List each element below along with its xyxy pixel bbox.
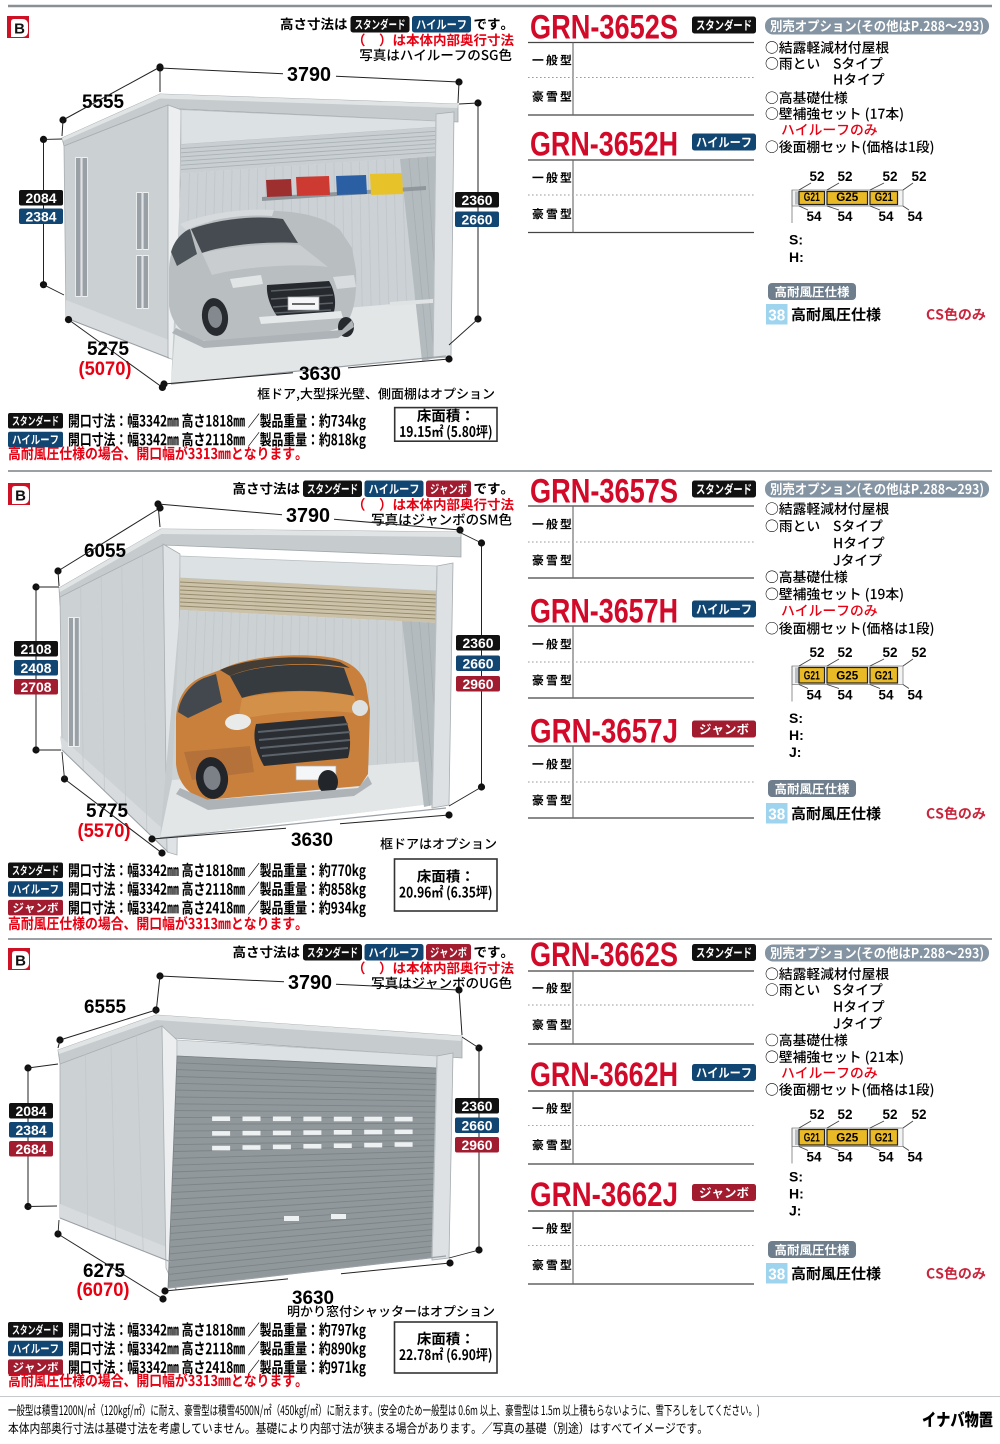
svg-text:J:: J:: [789, 1203, 801, 1219]
svg-text:(5070): (5070): [79, 359, 132, 380]
svg-text:H:: H:: [789, 727, 804, 743]
svg-text:G21: G21: [875, 1131, 893, 1145]
svg-text:2660: 2660: [463, 655, 494, 671]
svg-text:GRN-3657H: GRN-3657H: [530, 593, 678, 631]
svg-text:B: B: [15, 953, 26, 970]
svg-text:52: 52: [837, 1107, 852, 1122]
svg-text:2660: 2660: [462, 211, 493, 227]
svg-text:(5570): (5570): [78, 821, 131, 842]
svg-text:GRN-3652H: GRN-3652H: [530, 126, 678, 164]
svg-text:2084: 2084: [26, 190, 57, 206]
svg-text:G25: G25: [836, 669, 858, 683]
svg-text:54: 54: [878, 1150, 894, 1165]
svg-text:GRN-3652S: GRN-3652S: [530, 9, 678, 47]
svg-text:54: 54: [806, 209, 822, 224]
svg-text:3790: 3790: [287, 64, 331, 86]
svg-text:38: 38: [768, 308, 785, 325]
svg-text:2084: 2084: [16, 1103, 47, 1119]
svg-text:54: 54: [907, 1150, 923, 1165]
svg-text:B: B: [14, 21, 25, 38]
svg-text:(6070): (6070): [77, 1280, 130, 1301]
svg-text:2360: 2360: [463, 635, 494, 651]
svg-text:5275: 5275: [87, 339, 129, 360]
svg-text:52: 52: [809, 1107, 824, 1122]
svg-text:52: 52: [911, 645, 926, 660]
svg-text:S:: S:: [789, 710, 803, 726]
svg-text:54: 54: [837, 209, 853, 224]
svg-text:2360: 2360: [462, 1098, 493, 1114]
svg-text:G21: G21: [804, 669, 820, 683]
svg-text:6555: 6555: [84, 997, 126, 1018]
svg-text:2108: 2108: [21, 641, 52, 657]
svg-text:GRN-3657S: GRN-3657S: [530, 473, 678, 511]
svg-text:GRN-3657J: GRN-3657J: [530, 713, 678, 751]
svg-text:52: 52: [911, 169, 926, 184]
svg-text:52: 52: [837, 169, 852, 184]
svg-text:54: 54: [806, 1150, 822, 1165]
svg-text:GRN-3662H: GRN-3662H: [530, 1056, 678, 1094]
svg-text:3630: 3630: [291, 830, 333, 851]
svg-text:54: 54: [837, 1150, 853, 1165]
svg-text:G21: G21: [804, 190, 820, 204]
svg-text:G21: G21: [875, 669, 893, 683]
svg-text:G21: G21: [804, 1131, 820, 1145]
svg-text:2384: 2384: [26, 208, 57, 224]
svg-text:2960: 2960: [463, 676, 494, 692]
svg-text:54: 54: [907, 688, 923, 703]
svg-text:52: 52: [809, 169, 824, 184]
svg-text:52: 52: [882, 645, 897, 660]
svg-text:S:: S:: [789, 1169, 803, 1185]
svg-text:54: 54: [878, 688, 894, 703]
svg-text:S:: S:: [789, 232, 803, 248]
svg-text:52: 52: [882, 169, 897, 184]
svg-text:38: 38: [768, 807, 785, 824]
svg-text:52: 52: [911, 1107, 926, 1122]
svg-text:3790: 3790: [288, 972, 332, 994]
svg-text:B: B: [15, 488, 26, 505]
svg-text:H:: H:: [789, 1186, 804, 1202]
svg-text:G25: G25: [836, 190, 858, 204]
svg-text:G21: G21: [875, 190, 893, 204]
svg-text:52: 52: [882, 1107, 897, 1122]
svg-text:3630: 3630: [299, 364, 341, 385]
svg-text:G25: G25: [836, 1131, 858, 1145]
svg-text:J:: J:: [789, 744, 801, 760]
svg-text:GRN-3662S: GRN-3662S: [530, 936, 678, 974]
svg-text:3790: 3790: [286, 505, 330, 527]
svg-text:5555: 5555: [82, 92, 124, 113]
svg-text:52: 52: [809, 645, 824, 660]
svg-text:54: 54: [837, 688, 853, 703]
svg-text:H:: H:: [789, 249, 804, 265]
svg-text:2360: 2360: [462, 192, 493, 208]
svg-text:2684: 2684: [16, 1141, 47, 1157]
svg-text:2384: 2384: [16, 1122, 47, 1138]
svg-text:54: 54: [806, 688, 822, 703]
svg-text:2408: 2408: [21, 660, 52, 676]
svg-text:2660: 2660: [462, 1117, 493, 1133]
svg-text:52: 52: [837, 645, 852, 660]
svg-text:54: 54: [878, 209, 894, 224]
svg-text:54: 54: [907, 209, 923, 224]
svg-text:38: 38: [768, 1267, 785, 1284]
svg-text:GRN-3662J: GRN-3662J: [530, 1176, 678, 1214]
svg-text:2708: 2708: [21, 679, 52, 695]
svg-text:2960: 2960: [462, 1137, 493, 1153]
